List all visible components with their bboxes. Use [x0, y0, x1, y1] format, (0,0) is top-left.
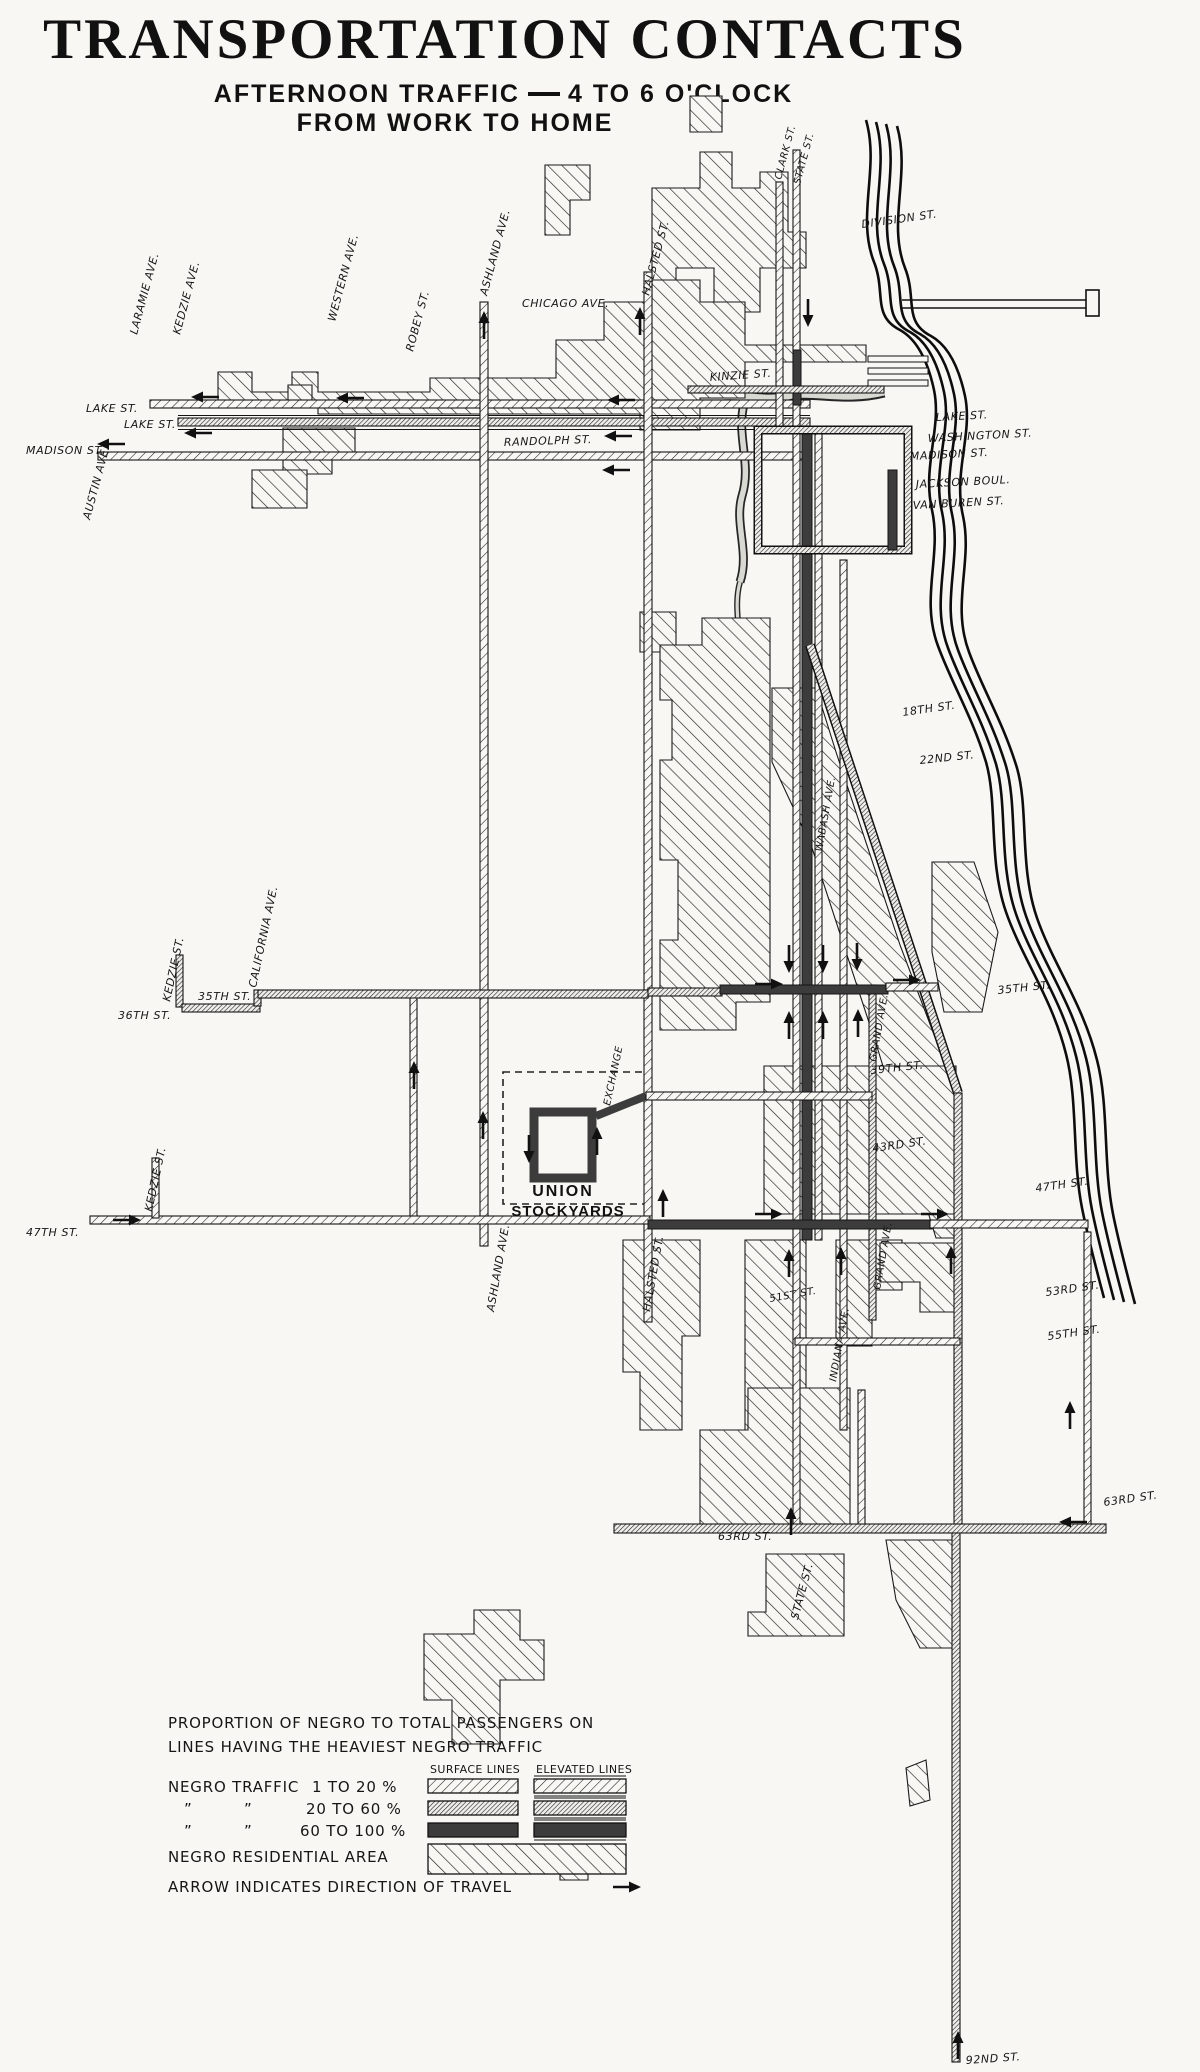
- legend-residential-label: NEGRO RESIDENTIAL AREA: [168, 1848, 388, 1866]
- 35th-st-line-west: [258, 990, 648, 998]
- western-stub-line: [410, 995, 417, 1220]
- legend-arrow-icon: [613, 1882, 641, 1893]
- halsted-st-line: [644, 272, 652, 1322]
- dock-slip: [868, 380, 928, 386]
- 39th-st-line: [646, 1092, 872, 1100]
- indiana-ave-line: [840, 560, 847, 1430]
- street-label-laramie-ave: LARAMIE AVE.: [127, 251, 161, 336]
- street-label-lake-st-2: LAKE ST.: [124, 418, 176, 431]
- direction-arrow-icon: [853, 1009, 864, 1037]
- legend-traffic-label: NEGRO TRAFFIC: [168, 1778, 299, 1796]
- legend-swatch-elevated-3: [534, 1823, 626, 1837]
- street-label-92nd-st: 92ND ST.: [965, 2050, 1021, 2067]
- kinzie-st-line: [688, 386, 884, 393]
- street-label-madison-st-west: MADISON ST.: [26, 444, 105, 457]
- legend-col-surface: SURFACE LINES: [430, 1763, 520, 1776]
- page-subtitle-2: FROM WORK TO HOME: [297, 109, 614, 137]
- legend-heading-1: PROPORTION OF NEGRO TO TOTAL PASSENGERS …: [168, 1714, 594, 1732]
- street-label-union: UNION: [532, 1183, 594, 1200]
- 63rd-st-line: [614, 1524, 1106, 1533]
- state-st-heavy-segment: [793, 350, 801, 405]
- street-label-47th-st-east: 47TH ST.: [1035, 1175, 1089, 1195]
- lake-st-elevated-line: [178, 418, 810, 426]
- residential-area: [545, 165, 590, 235]
- direction-arrow-icon: [803, 299, 814, 327]
- street-label-kedzie-st-2: KEDZIE ST.: [142, 1146, 168, 1213]
- residential-area: [623, 1240, 700, 1430]
- residential-area: [690, 96, 722, 132]
- map-canvas: TRANSPORTATION CONTACTS AFTERNOON TRAFFI…: [0, 0, 1200, 2072]
- legend-ditto-2a: ”: [184, 1822, 193, 1840]
- 55th-st-line: [795, 1338, 960, 1345]
- residential-area: [700, 1388, 850, 1528]
- downtown-elevated-loop: [758, 430, 908, 550]
- 35th-st-line-east: [886, 983, 938, 991]
- street-label-western-ave: WESTERN AVE.: [325, 232, 361, 322]
- street-label-california-ave: CALIFORNIA AVE.: [246, 885, 280, 989]
- legend-swatch-residential: [428, 1844, 626, 1874]
- dock-slip: [868, 368, 928, 374]
- direction-arrow-icon: [658, 1189, 669, 1217]
- residential-area: [932, 862, 998, 1012]
- dock-slip: [868, 356, 928, 362]
- street-label-53rd-st: 53RD ST.: [1045, 1279, 1101, 1299]
- street-label-exchange: EXCHANGE: [602, 1045, 625, 1107]
- wentworth-stub-line: [858, 1390, 865, 1530]
- legend-arrow-note: ARROW INDICATES DIRECTION OF TRAVEL: [168, 1878, 512, 1896]
- south-trunk-line: [954, 1093, 962, 1530]
- stockyards-loop-line: [534, 1112, 592, 1178]
- pier-head: [1086, 290, 1099, 316]
- residential-area: [906, 1760, 930, 1806]
- legend-range-1: 1 TO 20 %: [312, 1778, 397, 1796]
- madison-randolph-line: [98, 452, 810, 460]
- street-label-madison-st-east: MADISON ST.: [909, 446, 988, 463]
- street-label-35th-st-west: 35TH ST.: [198, 990, 251, 1003]
- street-label-van-buren-st: VAN BUREN ST.: [912, 494, 1004, 512]
- street-label-stockyards: STOCKYARDS: [511, 1203, 624, 1220]
- legend-swatch-surface-2: [428, 1801, 518, 1815]
- legend-swatch-surface-1: [428, 1779, 518, 1793]
- residential-area: [886, 1540, 958, 1648]
- residential-area: [283, 428, 355, 474]
- legend-range-2: 20 TO 60 %: [306, 1800, 402, 1818]
- direction-arrow-icon: [1065, 1401, 1076, 1429]
- page-subtitle-right: 4 TO 6 O'CLOCK: [568, 80, 793, 108]
- legend-ditto-2b: ”: [244, 1822, 253, 1840]
- 47th-st-line-east: [930, 1220, 1088, 1228]
- 35th-st-heavy-line: [720, 985, 888, 994]
- street-label-ashland-ave-north: ASHLAND AVE.: [477, 208, 513, 298]
- legend-swatch-elevated-2: [534, 1801, 626, 1815]
- street-label-lake-st-1: LAKE ST.: [86, 402, 138, 415]
- street-label-55th-st-east: 55TH ST.: [1047, 1323, 1101, 1343]
- street-label-kedzie-ave: KEDZIE AVE.: [170, 260, 202, 336]
- legend: PROPORTION OF NEGRO TO TOTAL PASSENGERS …: [168, 1714, 641, 1896]
- loop-heavy-segment: [888, 470, 897, 550]
- legend-ditto-1b: ”: [244, 1800, 253, 1818]
- direction-arrow-icon: [604, 431, 632, 442]
- street-label-randolph-st: RANDOLPH ST.: [504, 433, 593, 449]
- residential-area: [660, 618, 770, 1030]
- street-label-47th-st-west: 47TH ST.: [26, 1226, 79, 1239]
- legend-col-elevated: ELEVATED LINES: [536, 1763, 632, 1776]
- 36th-st-line: [182, 1004, 260, 1012]
- legend-swatch-elevated-1: [534, 1779, 626, 1793]
- street-label-robey-st: ROBEY ST.: [403, 289, 432, 353]
- page-title: TRANSPORTATION CONTACTS: [43, 8, 967, 71]
- street-label-18th-st: 18TH ST.: [902, 699, 956, 719]
- street-label-22nd-st: 22ND ST.: [919, 748, 975, 767]
- street-label-lake-st-east: LAKE ST.: [935, 408, 988, 424]
- legend-range-3: 60 TO 100 %: [300, 1822, 406, 1840]
- downtown-elevated-loop: [758, 430, 908, 550]
- legend-swatch-surface-3: [428, 1823, 518, 1837]
- street-label-63rd-st-east: 63RD ST.: [1103, 1489, 1159, 1509]
- page-subtitle-left: AFTERNOON TRAFFIC: [214, 80, 520, 108]
- map-page: TRANSPORTATION CONTACTS AFTERNOON TRAFFI…: [0, 0, 1200, 2072]
- street-label-washington-st: WASHINGTON ST.: [927, 427, 1032, 445]
- ashland-ave-line: [480, 302, 488, 1246]
- street-label-63rd-st-west: 63RD ST.: [718, 1530, 772, 1543]
- street-label-chicago-ave: CHICAGO AVE.: [522, 297, 609, 310]
- direction-arrow-icon: [602, 465, 630, 476]
- street-label-36th-st: 36TH ST.: [118, 1009, 171, 1022]
- south-trunk-line-lower: [952, 1530, 960, 2062]
- legend-heading-2: LINES HAVING THE HEAVIEST NEGRO TRAFFIC: [168, 1738, 543, 1756]
- residential-area: [252, 470, 307, 508]
- 35th-st-line-mid: [648, 988, 722, 996]
- legend-ditto-1a: ”: [184, 1800, 193, 1818]
- hyde-park-line: [1084, 1232, 1091, 1530]
- breakwater-pier: [902, 300, 1086, 308]
